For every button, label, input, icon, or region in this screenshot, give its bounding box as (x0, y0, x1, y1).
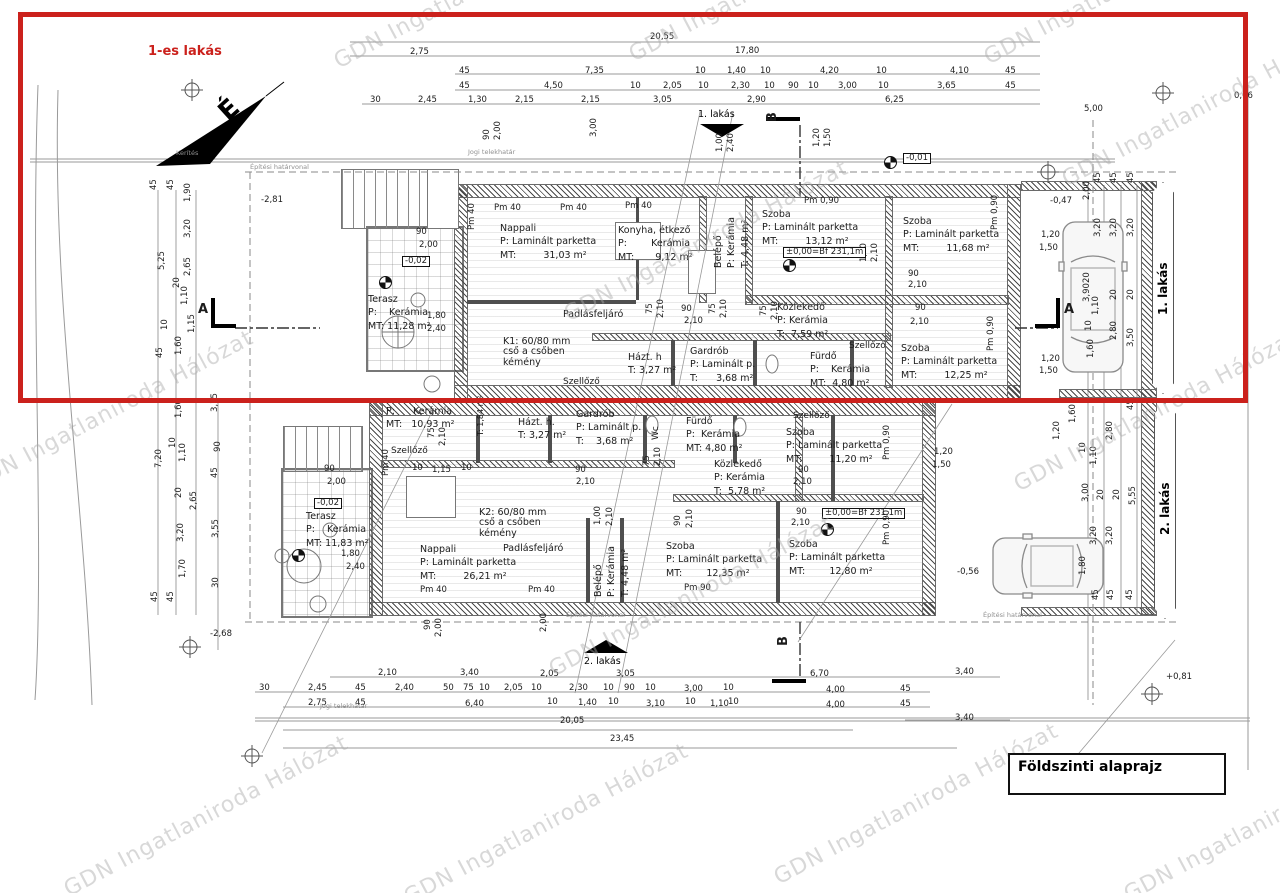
dimension-bottom: 10 (728, 698, 739, 707)
dimension-top: 2,15 (581, 96, 600, 105)
room-name: Gardrób (690, 345, 755, 358)
drawing-title: Földszinti alaprajz (1010, 755, 1224, 779)
unit1-room-label: GardróbP: Laminált p.T: 3,68 m² (690, 345, 755, 385)
dimension-interior: 90 (798, 466, 809, 475)
dimension-bottom: 3,40 (955, 714, 974, 723)
dimension-interior: 2,10 (871, 243, 880, 262)
dimension-bottom: 2,45 (308, 684, 327, 693)
unit1-room-label: TeraszP: KerámiaMT: 11,28 m² (368, 293, 430, 333)
section-marker-b: B (766, 112, 780, 122)
dimension-interior: 90 (908, 270, 919, 279)
dimension-top: 90 (483, 129, 492, 140)
dimension-bottom: 1,40 (578, 699, 597, 708)
dimension-bottom: 6,70 (810, 670, 829, 679)
room-area: MT: 4,80 m² (810, 377, 870, 390)
benchmark-icon (783, 259, 796, 272)
dimension-interior: 90 (681, 305, 692, 314)
dimension-left: 3,20 (184, 219, 193, 238)
dimension-right: 1,50 (1039, 244, 1058, 253)
dimension-left: 3,75 (211, 393, 220, 412)
unit2-room-label: Házt. h.T: 3,27 m² (518, 416, 566, 443)
room-floor: P: Laminált parketta (901, 355, 997, 368)
floor-plan-canvas: 1-es lakás (0, 0, 1280, 893)
room-floor: P: Kerámia (368, 306, 430, 319)
dimension-top: 45 (459, 67, 470, 76)
room-name: Terasz (368, 293, 430, 306)
unit1-room-label: SzobaP: Laminált parkettaMT: 11,68 m² (903, 215, 999, 255)
level-marker: -2,81 (261, 196, 283, 205)
room-area: T: 7,59 m² (777, 328, 828, 341)
dimension-bottom: 2,00 (540, 613, 549, 632)
dimension-bottom: 45 (900, 700, 911, 709)
chimney-note-k2: K2: 60/80 mm cső a csőben kémény (479, 508, 546, 539)
dimension-interior: 10 (461, 464, 472, 473)
dimension-bottom: 45 (355, 684, 366, 693)
plot-boundary-label: Jogi telekhatár (468, 149, 515, 156)
area-label: T: 1,84 m² (477, 395, 486, 436)
dimension-right: 20 (1127, 289, 1136, 300)
dimension-top: 10 (808, 82, 819, 91)
dimension-right: 1,20 (1041, 231, 1060, 240)
dimension-top: 1,40 (727, 67, 746, 76)
dimension-right: 45 (1110, 172, 1119, 183)
dimension-top: 45 (1005, 82, 1016, 91)
dimension-bottom: 3,40 (955, 668, 974, 677)
dimension-interior: 2,00 (419, 241, 438, 250)
fence-label: Kerítés (176, 150, 198, 157)
dimension-bottom: 45 (900, 685, 911, 694)
dimension-top: 10 (760, 67, 771, 76)
dimension-top: 1,50 (824, 128, 833, 147)
title-block: Földszinti alaprajz (1008, 753, 1226, 795)
dimension-bottom: 6,40 (465, 700, 484, 709)
room-floor: P: Laminált parketta (903, 228, 999, 241)
dimension-bottom: 3,05 (616, 670, 635, 679)
room-area: MT: 12,80 m² (789, 565, 885, 578)
dimension-top: 10 (698, 82, 709, 91)
section-marker-a: A (1064, 303, 1074, 317)
parapet-label: Pm 40 (468, 203, 477, 230)
dimension-top: 1,20 (813, 128, 822, 147)
dimension-bottom: 90 (424, 619, 433, 630)
parapet-label: Pm 40 (494, 204, 521, 213)
dimension-bottom: 2,00 (435, 618, 444, 637)
room-area: MT: 4,80 m² (686, 442, 742, 455)
room-area: MT: 11,28 m² (368, 320, 430, 333)
dimension-interior: 2,10 (654, 447, 663, 466)
dimension-left: 2,65 (190, 491, 199, 510)
dimension-interior: 75 (760, 305, 769, 316)
dimension-interior: 2,10 (684, 317, 703, 326)
unit2-room-label: NappaliP: Laminált parkettaMT: 26,21 m² (420, 543, 516, 583)
dimension-interior: 90 (915, 304, 926, 313)
dimension-bottom: 10 (608, 698, 619, 707)
dimension-top: 10 (878, 82, 889, 91)
dimension-bottom: 2,30 (569, 684, 588, 693)
level-marker: -0,56 (957, 568, 979, 577)
room-area: T: 3,68 m² (690, 372, 755, 385)
level-marker: ±0,00=Bf 231,1m (783, 247, 866, 258)
chimney-note-k1: K1: 60/80 mm cső a csőben kémény (503, 337, 570, 368)
dimension-bottom: 2,40 (395, 684, 414, 693)
room-name: Terasz (306, 510, 368, 523)
dimension-bottom: 10 (603, 684, 614, 693)
dimension-interior: 90 (416, 228, 427, 237)
dimension-top: 3,00 (838, 82, 857, 91)
dimension-top: 30 (370, 96, 381, 105)
dimension-bottom: 20,05 (560, 717, 584, 726)
unit2-room-label: TeraszP: KerámiaMT: 11,83 m² (306, 510, 368, 550)
parapet-label: Pm 40 (528, 586, 555, 595)
vent-label: Szellőző (563, 378, 600, 388)
benchmark-icon (884, 156, 897, 169)
room-name: Házt. h (628, 351, 676, 364)
dimension-bottom: 10 (547, 698, 558, 707)
dimension-interior: 90 (575, 466, 586, 475)
dimension-bottom: 4,00 (826, 701, 845, 710)
dimension-right: 3,20 (1110, 218, 1119, 237)
room-name: Nappali (500, 222, 596, 235)
section-marker-a: A (198, 303, 208, 317)
level-marker: -0,01 (903, 153, 931, 164)
dimension-left: 90 (214, 441, 223, 452)
dimension-bottom: 4,00 (826, 686, 845, 695)
dimension-left: 3,20 (177, 523, 186, 542)
dimension-interior: 90 (674, 515, 683, 526)
dimension-interior: 75 (646, 303, 655, 314)
dimension-interior: 75 (709, 303, 718, 314)
dimension-top: 2,75 (410, 48, 429, 57)
dimension-left: 1,60 (175, 336, 184, 355)
unit1-room-label: NappaliP: Laminált parkettaMT: 31,03 m² (500, 222, 596, 262)
dimension-right: 1,50 (1039, 367, 1058, 376)
room-floor: P: Kerámia (306, 523, 368, 536)
dimension-right: 45 (1107, 589, 1116, 600)
dimension-top: 3,05 (653, 96, 672, 105)
dimension-interior: 2,10 (606, 507, 615, 526)
room-name: Fürdő (810, 350, 870, 363)
dimension-top: 10 (876, 67, 887, 76)
dimension-top: 4,50 (544, 82, 563, 91)
vent-label: Szellőző (391, 447, 428, 457)
dimension-left: 3,55 (212, 519, 221, 538)
room-floor: P: Kerámia (386, 405, 455, 418)
level-marker: +0,81 (1166, 673, 1192, 682)
dimension-right: 1,20 (934, 448, 953, 457)
unit1-entrance-label: 1. lakás (698, 109, 735, 120)
dimension-bottom: 23,45 (610, 735, 634, 744)
room-area: MT: 13,12 m² (762, 235, 858, 248)
dimension-left: 1,90 (184, 183, 193, 202)
unit2-room-label: FürdőP: KerámiaMT: 4,80 m² (686, 415, 742, 455)
room-area: T: 3,68 m² (576, 435, 641, 448)
dimension-left: 10 (169, 437, 178, 448)
room-name: Közlekedő (714, 458, 765, 471)
dimension-bottom: 1,10 (710, 700, 729, 709)
building-line-label: Építési határvonal (983, 612, 1042, 619)
unit1-room-label: KözlekedőP: KerámiaT: 7,59 m² (777, 301, 828, 341)
room-area: MT: 10,93 m² (386, 418, 455, 431)
dimension-top: 5,00 (1084, 105, 1103, 114)
dimension-bottom: 10 (685, 698, 696, 707)
dimension-left: 1,70 (179, 559, 188, 578)
dimension-left: 1,15 (188, 314, 197, 333)
level-marker: -0,02 (314, 498, 342, 509)
survey-point-icon (179, 79, 1174, 767)
room-floor: P: Kerámia (686, 428, 742, 441)
dimension-interior: 90 (324, 465, 335, 474)
wc-label: Wc (652, 426, 662, 440)
dimension-left: 45 (211, 467, 220, 478)
dimension-left: 7,20 (155, 449, 164, 468)
dimension-interior: 1,15 (432, 466, 451, 475)
vent-label: Szellőző (793, 412, 830, 422)
dimension-top: 2,40 (727, 133, 736, 152)
unit2-room-label: SzobaP: Laminált parkettaMT: 11,20 m² (786, 426, 882, 466)
dimension-right: 3,20 (1090, 526, 1099, 545)
room-area: T: 5,78 m² (714, 485, 765, 498)
room-area: MT: 11,83 m² (306, 537, 368, 550)
dimension-right: 3,00 (1082, 483, 1091, 502)
unit2-room-label: KözlekedőP: KerámiaT: 5,78 m² (714, 458, 765, 498)
room-floor: P: Kerámia (810, 363, 870, 376)
dimension-left: 5,25 (158, 251, 167, 270)
dimension-right: 3,50 (1127, 328, 1136, 347)
unit2-room-label: GardróbP: Laminált p.T: 3,68 m² (576, 408, 641, 448)
dimension-bottom: 30 (259, 684, 270, 693)
dimension-interior: 2,40 (346, 563, 365, 572)
room-name: Konyha, étkező (618, 224, 693, 237)
dimension-right: 2,80 (1110, 321, 1119, 340)
unit1-room-label: Házt. hT: 3,27 m² (628, 351, 676, 378)
dimension-right: 45 (1092, 589, 1101, 600)
dimension-left: 20 (175, 487, 184, 498)
dimension-interior: 2,10 (686, 509, 695, 528)
benchmark-icon (379, 276, 392, 289)
room-floor: P: Laminált p. (690, 358, 755, 371)
room-area: T: 3,27 m² (518, 429, 566, 442)
unit2-room-label: BelépőP: KerámiaT: 4,48 m² (592, 546, 632, 597)
room-area: T: 3,27 m² (628, 364, 676, 377)
room-area: MT: 11,68 m² (903, 242, 999, 255)
dimension-right: 1,60 (1069, 404, 1078, 423)
dimension-bottom: 10 (723, 684, 734, 693)
dimension-bottom: 10 (479, 684, 490, 693)
dimension-left: 45 (151, 591, 160, 602)
dimension-bottom: 50 (443, 684, 454, 693)
dimension-left: 45 (167, 179, 176, 190)
dimension-bottom: 75 (463, 684, 474, 693)
dimension-left: 45 (167, 591, 176, 602)
dimension-top: 2,05 (663, 82, 682, 91)
unit2-room-label: P: KerámiaMT: 10,93 m² (386, 405, 455, 432)
room-floor: P: Laminált p. (576, 421, 641, 434)
dimension-bottom: 3,40 (460, 669, 479, 678)
dimension-left: 2,65 (184, 257, 193, 276)
unit1-room-label: FürdőP: KerámiaMT: 4,80 m² (810, 350, 870, 390)
dimension-right: 3,20 (1127, 218, 1136, 237)
room-name: Közlekedő (777, 301, 828, 314)
dimension-top: 10 (695, 67, 706, 76)
dimension-right: 20 (1097, 489, 1106, 500)
parapet-label: Pm 0,90 (883, 425, 892, 460)
room-floor: P: Laminált parketta (420, 556, 516, 569)
level-marker: ±0,00=Bf 231,1m (822, 508, 905, 519)
dimension-right: 20 (1113, 489, 1122, 500)
dimension-bottom: 90 (624, 684, 635, 693)
dimension-top: 2,30 (731, 82, 750, 91)
dimension-bottom: 3,00 (684, 685, 703, 694)
dimension-bottom: 10 (645, 684, 656, 693)
room-floor: P: Kerámia (777, 314, 828, 327)
parapet-label: Pm 40 (560, 204, 587, 213)
parapet-label: Pm 40 (625, 202, 652, 211)
dimension-top: 45 (459, 82, 470, 91)
dimension-right: 5,55 (1129, 486, 1138, 505)
dimension-right: 1,80 (1079, 556, 1088, 575)
dimension-top: 7,35 (585, 67, 604, 76)
dimension-bottom: 2,05 (504, 684, 523, 693)
dimension-interior: 1,80 (341, 550, 360, 559)
level-marker: -2,68 (210, 630, 232, 639)
dimension-right: 1,20 (1053, 421, 1062, 440)
dimension-top: 3,65 (937, 82, 956, 91)
dimension-right: 1,20 (1041, 355, 1060, 364)
dimension-interior: 2,10 (910, 318, 929, 327)
dimension-right: 1,60 (1087, 339, 1096, 358)
dimension-left: 45 (150, 179, 159, 190)
building-line-label: Építési határvonal (566, 612, 625, 619)
dimension-left: 30 (212, 577, 221, 588)
room-floor: P: Laminált parketta (789, 551, 885, 564)
room-floor: P: Kerámia (605, 546, 618, 597)
room-name: Fürdő (686, 415, 742, 428)
dimension-interior: 2,00 (327, 478, 346, 487)
dimension-top: 2,45 (418, 96, 437, 105)
building-line-label: Építési határvonal (250, 164, 309, 171)
unit2-side-label: 2. lakás (1158, 482, 1172, 535)
dimension-interior: 90 (796, 508, 807, 517)
section-marker-b: B (777, 636, 791, 646)
dimension-top: 90 (788, 82, 799, 91)
dimension-lines (158, 42, 1137, 748)
dimension-left: 1,60 (175, 399, 184, 418)
dimension-right: 1,50 (932, 461, 951, 470)
dimension-interior: 10 (412, 464, 423, 473)
dimension-right: 20 (1110, 289, 1119, 300)
room-name: Házt. h. (518, 416, 566, 429)
room-name: Gardrób (576, 408, 641, 421)
dimension-right: 45 (1126, 589, 1135, 600)
dimension-right: 20 (1083, 272, 1092, 283)
apartment1-highlight-label: 1-es lakás (148, 44, 222, 59)
dimension-interior: 2,10 (576, 478, 595, 487)
dimension-top: 10 (764, 82, 775, 91)
dimension-top: 1,30 (468, 96, 487, 105)
dimension-top: 3,00 (590, 118, 599, 137)
parapet-label: Pm 40 (420, 586, 447, 595)
dimension-top: 4,20 (820, 67, 839, 76)
room-area: MT: 11,20 m² (786, 453, 882, 466)
dimension-top: 2,90 (747, 96, 766, 105)
dimension-bottom: 10 (531, 684, 542, 693)
room-name: Belépő (592, 546, 605, 597)
dimension-interior: 1,00 (594, 506, 603, 525)
dimension-right: 3,20 (1106, 526, 1115, 545)
dimension-right: 1,10 (1092, 296, 1101, 315)
dimension-left: 45 (156, 347, 165, 358)
room-name: Szoba (786, 426, 882, 439)
level-marker: -0,47 (1050, 197, 1072, 206)
parapet-label: Pm 40 (382, 449, 391, 476)
room-floor: P: Laminált parketta (762, 221, 858, 234)
dimension-bottom: 2,10 (378, 669, 397, 678)
dimension-interior: 2,10 (908, 281, 927, 290)
unit1-side-label: 1. lakás (1156, 262, 1170, 315)
dimension-top: 2,00 (494, 121, 503, 140)
room-area: MT: 31,03 m² (500, 249, 596, 262)
dimension-interior: 2,10 (657, 299, 666, 318)
dimension-top: 10 (630, 82, 641, 91)
dimension-top: 45 (1005, 67, 1016, 76)
dimension-top: 6,25 (885, 96, 904, 105)
room-floor: P: Laminált parketta (500, 235, 596, 248)
room-area: T: 4,48 m² (619, 546, 632, 597)
dimension-interior: 75 (643, 455, 652, 466)
room-area: MT: 12,25 m² (901, 369, 997, 382)
dimension-left: 1,10 (181, 286, 190, 305)
dimension-right: 3,20 (1094, 218, 1103, 237)
room-name: Nappali (420, 543, 516, 556)
dimension-left: 1,10 (179, 443, 188, 462)
dimension-right: 10 (1085, 320, 1094, 331)
dimension-top: 4,10 (950, 67, 969, 76)
unit1-room-label: SzobaP: Laminált parkettaMT: 12,25 m² (901, 342, 997, 382)
dimension-top: 2,15 (515, 96, 534, 105)
dimension-top: 1,00 (716, 133, 725, 152)
dimension-left: 10 (161, 319, 170, 330)
dimension-top: 17,80 (735, 47, 759, 56)
room-name: Szoba (903, 215, 999, 228)
level-marker: -0,02 (402, 256, 430, 267)
room-floor: P: Laminált parketta (786, 439, 882, 452)
dimension-interior: 2,10 (720, 299, 729, 318)
benchmark-icon (292, 549, 305, 562)
room-name: Szoba (901, 342, 997, 355)
room-area: MT: 26,21 m² (420, 570, 516, 583)
dimension-right: 45 (1127, 172, 1136, 183)
dimension-interior: 2,10 (793, 478, 812, 487)
plot-boundary-label: Jogi telekhatár (320, 703, 367, 710)
room-floor: P: Kerámia (714, 471, 765, 484)
dimension-bottom: 3,10 (646, 700, 665, 709)
